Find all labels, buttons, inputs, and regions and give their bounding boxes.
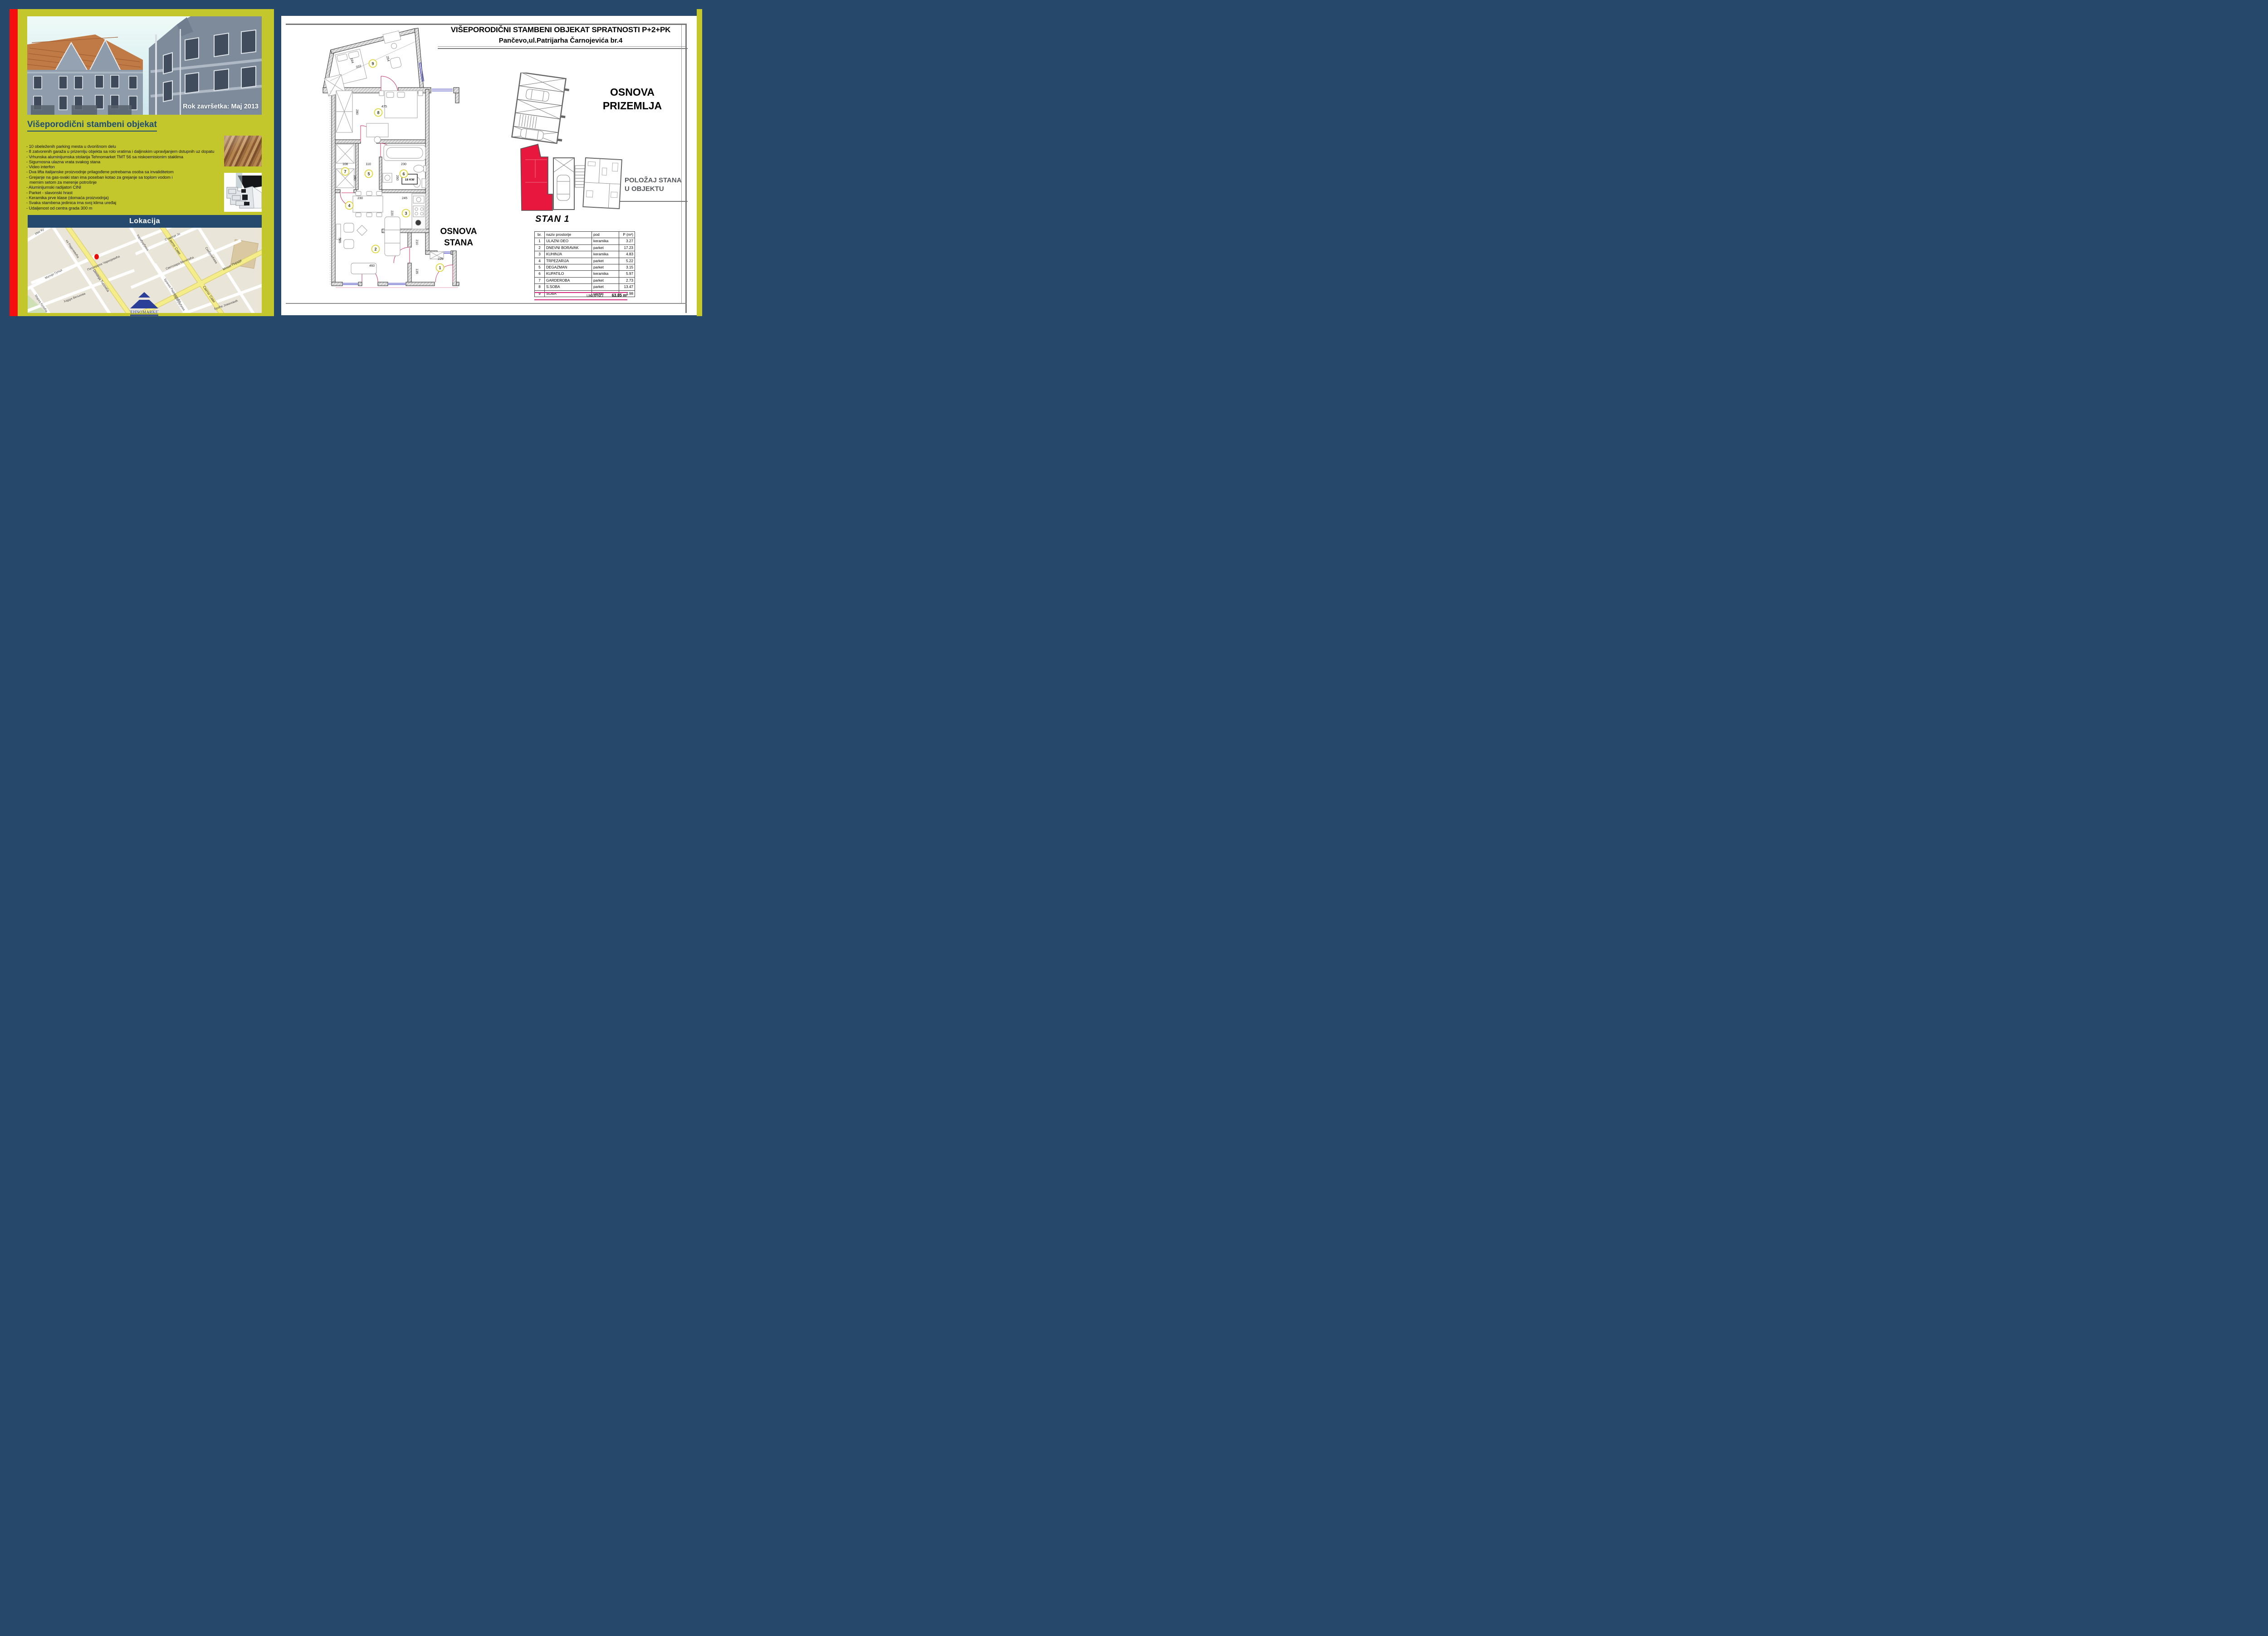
plan-caption-line1: OSNOVA <box>440 227 477 236</box>
plan-caption-line2: STANA <box>444 238 473 248</box>
brochure-page: Rok završetka: Maj 2013 Višeporodični st… <box>0 0 711 332</box>
dim-label: 260 <box>353 175 357 181</box>
cell-pod: parket <box>592 264 619 271</box>
position-label-line2: U OBJEKTU <box>625 185 693 193</box>
cell-p: 4.83 <box>619 251 635 258</box>
cell-pod: parket <box>592 277 619 283</box>
titleblock-vertical-thick <box>685 24 687 313</box>
dim-label: 220 <box>390 210 394 216</box>
cell-br: 6 <box>535 271 545 277</box>
logo-wordmark: TEHNOMARKET <box>130 310 159 314</box>
dim-label: 108 <box>342 162 348 166</box>
cell-naziv: KUHINJA <box>545 251 592 258</box>
feature-item: - Grejanje na gas-svaki stan ima poseban… <box>26 175 224 180</box>
dim-label: 230 <box>357 196 363 200</box>
cell-pod: parket <box>592 244 619 251</box>
cell-p: 5.97 <box>619 271 635 277</box>
garage-bay <box>553 158 574 210</box>
cell-naziv: DEGAZMAN <box>545 264 592 271</box>
cell-br: 8 <box>535 284 545 290</box>
dim-label: 585 <box>338 238 342 243</box>
dim-label: 280 <box>355 109 359 115</box>
feature-item: - Keramika prve klase (domaća proizvodnj… <box>26 195 224 200</box>
cell-br: 4 <box>535 258 545 264</box>
room-number: 7 <box>344 170 346 174</box>
dim-label: 210 <box>415 239 419 245</box>
feature-item: - 10 obeleženih parking mesta u dvorišno… <box>26 144 224 149</box>
table-row: 4 TRPEZARIJA parket 5.22 <box>535 258 635 264</box>
room-number: 2 <box>374 247 376 252</box>
right-yellow-accent-stripe <box>697 9 702 316</box>
dim-label: 245 <box>402 196 407 200</box>
cell-naziv: GARDEROBA <box>545 277 592 283</box>
feature-item: - 8 zatvorenih garaža u prizemlju objekt… <box>26 149 224 154</box>
feature-item: - Parket - slavonski hrast <box>26 190 224 195</box>
section-heading: Višeporodični stambeni objekat <box>27 120 157 132</box>
apartment-floor-plan: 18 KW 164 332 254 475 280 108 110 230 26… <box>313 23 485 308</box>
cell-br: 1 <box>535 238 545 244</box>
cell-naziv: TRPEZARIJA <box>545 258 592 264</box>
table-row: 2 DNEVNI BORAVAK parket 17.23 <box>535 244 635 251</box>
feature-list: - 10 obeleženih parking mesta u dvorišno… <box>26 144 224 211</box>
cell-p: 13.47 <box>619 284 635 290</box>
dim-label: 254 <box>386 55 391 62</box>
left-red-accent-stripe <box>10 9 18 316</box>
header-p: P (m²) <box>619 232 635 238</box>
room-number: 3 <box>405 211 407 216</box>
cell-naziv: S.SOBA <box>545 284 592 290</box>
position-label-line1: POLOŽAJ STANA <box>625 176 693 185</box>
feature-item: - Aluminijumski radijatori CINI <box>26 185 224 190</box>
cell-p: 17.23 <box>619 244 635 251</box>
cell-p: 3.27 <box>619 238 635 244</box>
plan-caption: OSNOVA STANA <box>440 227 477 248</box>
garage-wing <box>512 73 570 144</box>
dim-label: 230 <box>401 162 406 166</box>
boiler-label: 18 KW <box>405 178 415 181</box>
table-row: 8 S.SOBA parket 13.47 <box>535 284 635 290</box>
cell-naziv: ULAZNI DEO <box>545 238 592 244</box>
cell-p: 2.73 <box>619 277 635 283</box>
dim-label: 225 <box>438 257 443 261</box>
table-row: 1 ULAZNI DEO keramika 3.27 <box>535 238 635 244</box>
red-location-marker <box>94 254 99 259</box>
room-number: 8 <box>377 111 379 115</box>
aluminium-profile-image <box>224 173 262 212</box>
dim-label: 460 <box>369 264 375 268</box>
table-row: 3 KUHINJA keramika 4.83 <box>535 251 635 258</box>
apartment-table-title: STAN 1 <box>535 214 570 225</box>
titleblock-vertical-thin <box>681 25 682 304</box>
room-number: 1 <box>439 266 441 270</box>
feature-item: - Sigurnosna ulazna vrata svakog stana <box>26 160 224 165</box>
cell-pod: parket <box>592 258 619 264</box>
cell-pod: keramika <box>592 271 619 277</box>
header-br: br. <box>535 232 545 238</box>
feature-item: - Udaljenost od centra grada 300 m <box>26 206 224 211</box>
position-label: POLOŽAJ STANA U OBJEKTU <box>625 176 693 193</box>
table-row: 7 GARDEROBA parket 2.73 <box>535 277 635 283</box>
building-photo <box>27 16 262 115</box>
total-label: UKUPNO <box>587 293 603 298</box>
header-naziv: naziv prostorije <box>545 232 592 238</box>
room-area-table: br. naziv prostorije pod P (m²) 1 ULAZNI… <box>534 231 635 297</box>
cell-p: 5.22 <box>619 258 635 264</box>
room-number: 9 <box>371 62 374 66</box>
site-caption-line1: OSNOVA <box>582 85 682 99</box>
logo-underline <box>130 315 158 316</box>
dim-label: 135 <box>415 269 419 274</box>
logo-pyramid-top <box>138 292 150 298</box>
cell-naziv: KUPATILO <box>545 271 592 277</box>
header-pod: pod <box>592 232 619 238</box>
cell-pod: parket <box>592 284 619 290</box>
cell-br: 9 <box>535 290 545 297</box>
cell-pod: keramika <box>592 251 619 258</box>
cell-br: 5 <box>535 264 545 271</box>
total-value: 63.85 m² <box>608 293 628 298</box>
stan1-highlight <box>521 144 552 210</box>
logo-pyramid-base <box>130 300 158 308</box>
feature-item-continuation: mernim setom za merenje potrošnje <box>26 180 224 185</box>
parquet-image <box>224 136 262 166</box>
total-rule-bottom <box>534 299 627 300</box>
cell-pod: keramika <box>592 238 619 244</box>
table-row: 6 KUPATILO keramika 5.97 <box>535 271 635 277</box>
feature-item: - Dva lifta italijanske proizvodnje pril… <box>26 170 224 175</box>
room-number: 6 <box>402 172 405 176</box>
photo-caption: Rok završetka: Maj 2013 <box>113 103 259 110</box>
feature-item: - Video interfon <box>26 165 224 170</box>
tehnomarket-logo: TEHNOMARKET <box>130 291 159 317</box>
lokacija-header: Lokacija <box>28 215 262 228</box>
dim-label: 110 <box>366 162 371 166</box>
table-header-row: br. naziv prostorije pod P (m²) <box>535 232 635 238</box>
cell-naziv: SOBA <box>545 290 592 297</box>
cell-p: 3.15 <box>619 264 635 271</box>
feature-item: - Vrhunska aluminijumska stolarija Tehno… <box>26 155 224 160</box>
site-caption: OSNOVA PRIZEMLJA <box>582 85 682 112</box>
feature-item: - Svaka stambena jedinica ima svoj klima… <box>26 200 224 205</box>
site-caption-line2: PRIZEMLJA <box>582 99 682 112</box>
cell-br: 2 <box>535 244 545 251</box>
cell-naziv: DNEVNI BORAVAK <box>545 244 592 251</box>
dim-label: 475 <box>381 104 387 108</box>
cell-br: 3 <box>535 251 545 258</box>
dim-label: 260 <box>396 175 400 181</box>
cell-br: 7 <box>535 277 545 283</box>
table-row: 5 DEGAZMAN parket 3.15 <box>535 264 635 271</box>
room-number: 4 <box>348 204 350 208</box>
room-number: 5 <box>367 172 370 176</box>
adjacent-apartment <box>583 158 622 209</box>
